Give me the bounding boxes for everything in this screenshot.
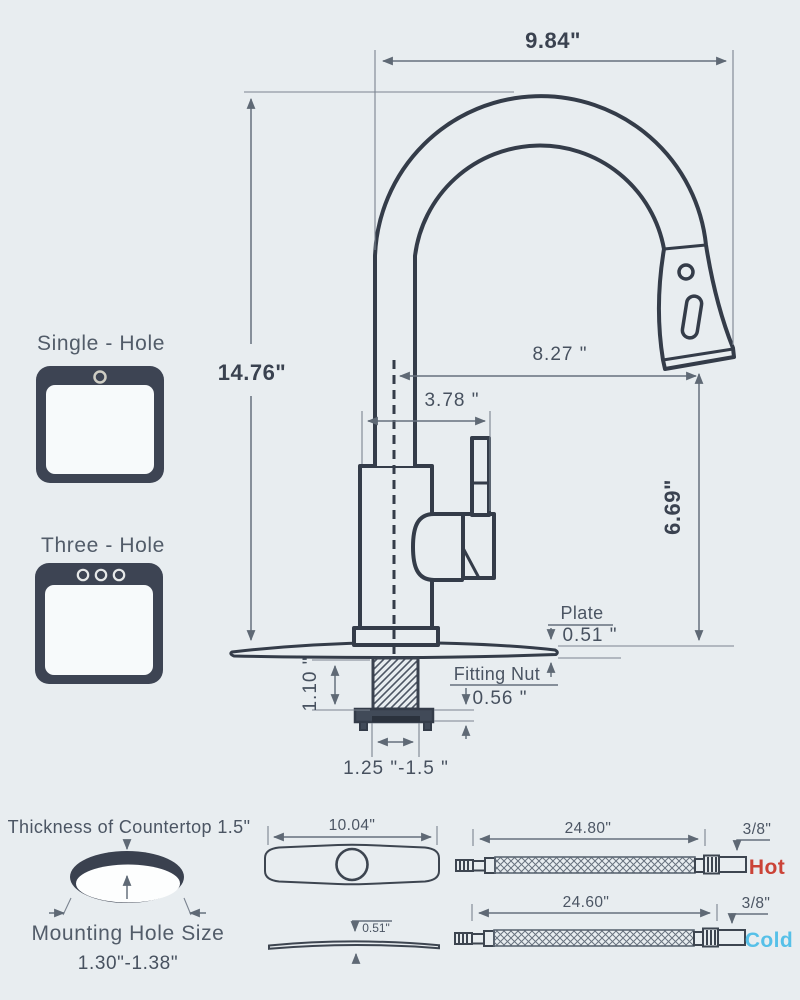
deck-plate-width-label: 10.04" xyxy=(329,817,376,834)
mounting-hole-size-range: 1.30"-1.38" xyxy=(78,953,178,974)
cold-hose-length-label: 24.60" xyxy=(563,894,610,911)
fitting-nut-label: Fitting Nut xyxy=(454,664,540,684)
spout-height-label: 6.69" xyxy=(660,479,685,535)
countertop-figure: Thickness of Countertop 1.5" Mounting Ho… xyxy=(8,817,251,974)
mounting-hole-range-label: 1.25 "-1.5 " xyxy=(343,758,449,779)
cold-label: Cold xyxy=(745,929,793,952)
cold-connector-size-label: 3/8" xyxy=(742,895,771,912)
total-height-label: 14.76" xyxy=(218,360,286,385)
handle-reach-label: 3.78 " xyxy=(424,390,479,411)
countertop-thickness-label: Thickness of Countertop 1.5" xyxy=(8,817,251,837)
mounting-hole-size-label: Mounting Hole Size xyxy=(32,922,225,945)
deck-plate-views: 10.04" 0.51" xyxy=(265,817,439,963)
shank-height-label: 1.10 " xyxy=(300,656,321,711)
deck-plate-top-view xyxy=(265,845,439,885)
hot-label: Hot xyxy=(749,856,785,879)
spout-reach-label: 8.27 " xyxy=(532,344,587,365)
hot-hose-graphic xyxy=(456,856,746,874)
plate-thickness-label: 0.51 " xyxy=(562,625,617,646)
faucet-dimension-diagram: 9.84" 14.76" 8.27 " 3.78 " 6.69" Plate 0… xyxy=(0,0,800,1000)
three-hole-label: Three - Hole xyxy=(41,534,165,557)
fitting-nut-height-label: 0.56 " xyxy=(472,688,527,709)
deck-plate-side-view xyxy=(269,941,439,948)
faucet-spec-sheet: 9.84" 14.76" 8.27 " 3.78 " 6.69" Plate 0… xyxy=(0,0,800,1000)
deck-plate-thickness-label: 0.51" xyxy=(362,921,390,935)
three-hole-icon xyxy=(35,563,163,684)
hot-hose-length-label: 24.80" xyxy=(565,820,612,837)
fitting-nut-graphic xyxy=(355,709,433,730)
hot-connector-size-label: 3/8" xyxy=(743,821,772,838)
base-collar xyxy=(354,628,438,645)
faucet-drawing xyxy=(231,96,734,730)
spout-width-label: 9.84" xyxy=(525,28,581,53)
installation-options: Single - Hole Three - Hole xyxy=(35,332,165,684)
hot-supply-hose: 24.80" 3/8" Hot xyxy=(456,820,785,879)
cold-hose-graphic xyxy=(455,929,745,947)
single-hole-icon xyxy=(36,366,164,483)
cold-supply-hose: 24.60" 3/8" Cold xyxy=(455,894,793,952)
threaded-shank xyxy=(373,658,418,709)
plate-label: Plate xyxy=(560,603,603,623)
single-hole-label: Single - Hole xyxy=(37,332,165,355)
